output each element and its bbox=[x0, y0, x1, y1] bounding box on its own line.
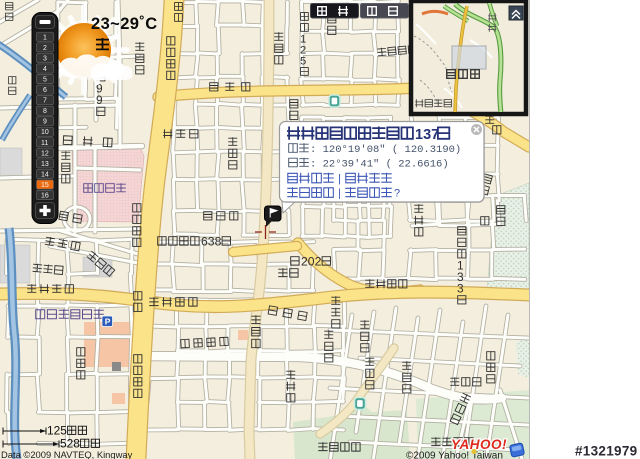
svg-text:16: 16 bbox=[41, 193, 49, 200]
svg-text:137: 137 bbox=[415, 127, 439, 143]
svg-text:9: 9 bbox=[43, 119, 47, 126]
svg-text:3: 3 bbox=[43, 55, 47, 62]
svg-text:3: 3 bbox=[457, 282, 464, 296]
svg-text:YAHOO!: YAHOO! bbox=[451, 437, 507, 452]
svg-text:P: P bbox=[105, 317, 111, 327]
svg-text:: 22°39'41" ( 22.6616): : 22°39'41" ( 22.6616) bbox=[310, 159, 449, 171]
svg-text:|: | bbox=[338, 173, 341, 185]
svg-text:15: 15 bbox=[41, 182, 49, 189]
svg-text:9: 9 bbox=[96, 93, 103, 107]
svg-text:11: 11 bbox=[41, 140, 48, 147]
svg-text:12: 12 bbox=[41, 150, 49, 157]
svg-text:?: ? bbox=[394, 188, 400, 200]
svg-text:6: 6 bbox=[43, 87, 47, 94]
svg-text:5: 5 bbox=[43, 77, 47, 84]
svg-text:14: 14 bbox=[41, 172, 49, 179]
svg-text:8: 8 bbox=[215, 234, 222, 248]
svg-text:5: 5 bbox=[60, 424, 67, 438]
svg-text:#1321979: #1321979 bbox=[575, 444, 637, 459]
svg-text:2: 2 bbox=[315, 254, 322, 268]
svg-text:13: 13 bbox=[41, 161, 49, 168]
svg-text:7: 7 bbox=[43, 98, 47, 105]
svg-text:4: 4 bbox=[43, 66, 47, 73]
svg-text:5: 5 bbox=[300, 56, 306, 68]
svg-text:: 120°19'08" ( 120.3190): : 120°19'08" ( 120.3190) bbox=[310, 144, 461, 156]
svg-text:8: 8 bbox=[43, 108, 47, 115]
svg-text:2: 2 bbox=[43, 45, 47, 52]
svg-text:Data ©2009 NAVTEQ, Kingway: Data ©2009 NAVTEQ, Kingway bbox=[1, 449, 133, 459]
svg-text:10: 10 bbox=[41, 129, 49, 136]
svg-text:|: | bbox=[338, 188, 341, 200]
svg-text:1: 1 bbox=[43, 34, 47, 41]
svg-text:23~29˚C: 23~29˚C bbox=[91, 15, 158, 33]
